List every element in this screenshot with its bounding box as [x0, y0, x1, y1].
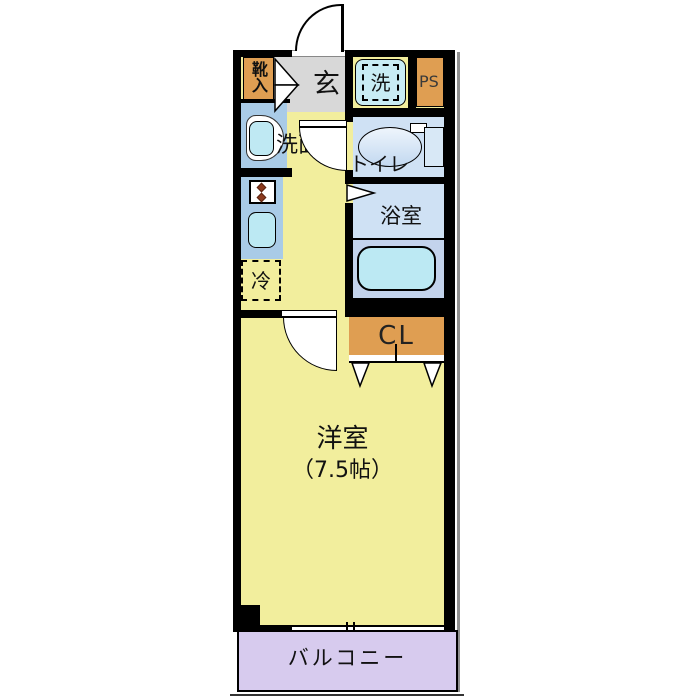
shoe-cabinet-door-triangle-top — [275, 59, 298, 85]
floor-plan: 靴入 PS 洗 トイレ 浴室 洗面 冷 CL 洋室 （7.5帖） — [0, 0, 700, 700]
closet-door-triangle-right — [424, 363, 441, 386]
bath-folding-door-triangle — [347, 185, 374, 201]
door-symbols-overlay — [0, 0, 700, 700]
closet-door-triangle-left — [352, 363, 369, 386]
shoe-cabinet-door-triangle-bottom — [275, 85, 298, 111]
